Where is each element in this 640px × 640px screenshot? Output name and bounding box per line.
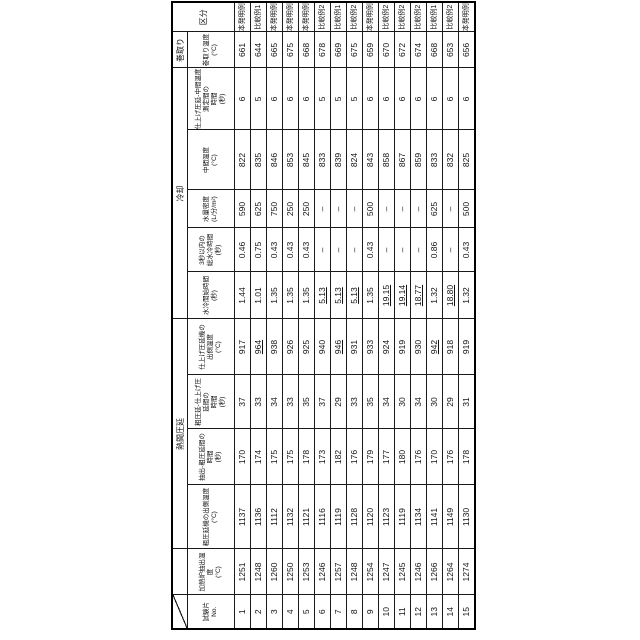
cell-total_water_cooling_time_within_3s: – — [315, 228, 331, 272]
cell-finish_mill_exit_temp: 919 — [459, 319, 476, 375]
cell-classification: 比較例1 — [331, 2, 347, 32]
cell-furnace_extraction_temp: 1251 — [235, 549, 251, 595]
cell-rough_to_finish_rolling_time: 29 — [443, 375, 459, 429]
table-row-specimen-11: 11124511191803091919.14––8676672比較例2 — [395, 2, 411, 629]
table-row-specimen-8: 812481128176339315.13––8245675比較例2 — [347, 2, 363, 629]
cell-finish_to_intermediate_measure_time: 6 — [235, 68, 251, 130]
cell-classification: 本発明例 — [363, 2, 379, 32]
cell-intermediate_temp: 858 — [379, 130, 395, 190]
cell-furnace_extraction_temp: 1260 — [267, 549, 283, 595]
table-row-specimen-6: 612461116173379405.13––8335678比較例2 — [315, 2, 331, 629]
cell-rough_to_finish_rolling_time: 30 — [395, 375, 411, 429]
cell-finish_mill_exit_temp: 924 — [379, 319, 395, 375]
cell-intermediate_temp: 859 — [411, 130, 427, 190]
empty-group-cell — [172, 549, 188, 595]
cell-specimen_no: 9 — [363, 595, 379, 629]
cell-coiling_temp: 661 — [235, 32, 251, 68]
cell-rough_to_finish_rolling_time: 34 — [267, 375, 283, 429]
cell-water_density: 625 — [251, 190, 267, 228]
cell-total_water_cooling_time_within_3s: – — [395, 228, 411, 272]
cell-classification: 本発明例 — [283, 2, 299, 32]
cell-classification: 比較例2 — [315, 2, 331, 32]
cell-classification: 比較例2 — [443, 2, 459, 32]
cell-total_water_cooling_time_within_3s: – — [443, 228, 459, 272]
cell-extraction_to_rough_rolling_time: 176 — [411, 429, 427, 485]
cell-water_density: 590 — [235, 190, 251, 228]
cell-specimen_no: 7 — [331, 595, 347, 629]
page: 熱間圧延 冷却 巻取り 区分 試験片 No. 加熱炉抽出温度 (°C) 粗圧延機… — [0, 0, 640, 640]
column-header-total-water-cooling-time: 3秒以内の 総水冷時間 (秒) — [188, 228, 235, 272]
cell-rough_to_finish_rolling_time: 37 — [315, 375, 331, 429]
cell-specimen_no: 14 — [443, 595, 459, 629]
cell-total_water_cooling_time_within_3s: – — [379, 228, 395, 272]
cell-rough_mill_exit_temp: 1121 — [299, 485, 315, 549]
column-header-water-density: 水量密度 (L/分/m²) — [188, 190, 235, 228]
cell-rough_to_finish_rolling_time: 31 — [459, 375, 476, 429]
cell-finish_mill_exit_temp: 919 — [395, 319, 411, 375]
column-header-finish-to-intermediate-time: 仕上げ圧延-中間温度測定間の 時間 (秒) — [188, 68, 235, 130]
cell-specimen_no: 6 — [315, 595, 331, 629]
table-row-specimen-2: 212481136174339641.010.756258355644比較例1 — [251, 2, 267, 629]
cell-coiling_temp: 675 — [347, 32, 363, 68]
cell-water_density: 625 — [427, 190, 443, 228]
cell-finish_mill_exit_temp: 931 — [347, 319, 363, 375]
cell-finish_to_intermediate_measure_time: 6 — [283, 68, 299, 130]
cell-intermediate_temp: 835 — [251, 130, 267, 190]
cell-furnace_extraction_temp: 1248 — [251, 549, 267, 595]
table-row-specimen-9: 912541120179359331.350.435008436659本発明例 — [363, 2, 379, 629]
cell-specimen_no: 11 — [395, 595, 411, 629]
cell-water_cooling_start_time: 1.35 — [363, 272, 379, 319]
cell-classification: 本発明例 — [459, 2, 476, 32]
cell-extraction_to_rough_rolling_time: 176 — [443, 429, 459, 485]
cell-rough_to_finish_rolling_time: 37 — [235, 375, 251, 429]
cell-intermediate_temp: 846 — [267, 130, 283, 190]
cell-rough_to_finish_rolling_time: 30 — [427, 375, 443, 429]
cell-total_water_cooling_time_within_3s: 0.43 — [459, 228, 476, 272]
cell-furnace_extraction_temp: 1247 — [379, 549, 395, 595]
cell-rough_to_finish_rolling_time: 35 — [299, 375, 315, 429]
cell-water_cooling_start_time: 18.80 — [443, 272, 459, 319]
cell-intermediate_temp: 822 — [235, 130, 251, 190]
cell-classification: 比較例2 — [411, 2, 427, 32]
cell-furnace_extraction_temp: 1257 — [331, 549, 347, 595]
cell-coiling_temp: 672 — [395, 32, 411, 68]
cell-coiling_temp: 653 — [443, 32, 459, 68]
cell-extraction_to_rough_rolling_time: 176 — [347, 429, 363, 485]
cell-total_water_cooling_time_within_3s: 0.43 — [299, 228, 315, 272]
cell-specimen_no: 13 — [427, 595, 443, 629]
cell-intermediate_temp: 845 — [299, 130, 315, 190]
cell-coiling_temp: 675 — [283, 32, 299, 68]
cell-finish_mill_exit_temp: 918 — [443, 319, 459, 375]
cell-rough_mill_exit_temp: 1128 — [347, 485, 363, 549]
cell-classification: 本発明例 — [267, 2, 283, 32]
cell-finish_to_intermediate_measure_time: 6 — [427, 68, 443, 130]
group-header-cooling: 冷却 — [172, 68, 188, 319]
cell-water_density: 250 — [283, 190, 299, 228]
cell-specimen_no: 10 — [379, 595, 395, 629]
column-header-row: 試験片 No. 加熱炉抽出温度 (°C) 粗圧延機の出側温度 (°C) 抽出-粗… — [188, 2, 235, 629]
cell-rough_mill_exit_temp: 1134 — [411, 485, 427, 549]
cell-finish_mill_exit_temp: 964 — [251, 319, 267, 375]
cell-water_cooling_start_time: 18.77 — [411, 272, 427, 319]
table-row-specimen-12: 12124611341763493018.77––8596674比較例2 — [411, 2, 427, 629]
cell-total_water_cooling_time_within_3s: – — [411, 228, 427, 272]
cell-finish_mill_exit_temp: 942 — [427, 319, 443, 375]
cell-total_water_cooling_time_within_3s: 0.86 — [427, 228, 443, 272]
cell-intermediate_temp: 867 — [395, 130, 411, 190]
cell-rough_mill_exit_temp: 1141 — [427, 485, 443, 549]
cell-finish_to_intermediate_measure_time: 6 — [443, 68, 459, 130]
rotated-table-wrapper: 熱間圧延 冷却 巻取り 区分 試験片 No. 加熱炉抽出温度 (°C) 粗圧延機… — [171, 1, 476, 630]
cell-extraction_to_rough_rolling_time: 180 — [395, 429, 411, 485]
table-row-specimen-1: 112511137170379171.440.465908226661本発明例 — [235, 2, 251, 629]
column-header-intermediate-temp: 中間温度 (°C) — [188, 130, 235, 190]
cell-coiling_temp: 668 — [299, 32, 315, 68]
cell-total_water_cooling_time_within_3s: 0.43 — [267, 228, 283, 272]
cell-furnace_extraction_temp: 1274 — [459, 549, 476, 595]
cell-rough_mill_exit_temp: 1112 — [267, 485, 283, 549]
table-row-specimen-3: 312601112175349381.350.437508466665本発明例 — [267, 2, 283, 629]
cell-specimen_no: 8 — [347, 595, 363, 629]
cell-rough_to_finish_rolling_time: 29 — [331, 375, 347, 429]
cell-rough_mill_exit_temp: 1137 — [235, 485, 251, 549]
cell-rough_mill_exit_temp: 1149 — [443, 485, 459, 549]
cell-classification: 比較例2 — [347, 2, 363, 32]
cell-water_cooling_start_time: 5.13 — [315, 272, 331, 319]
cell-rough_to_finish_rolling_time: 33 — [251, 375, 267, 429]
cell-classification: 本発明例 — [235, 2, 251, 32]
cell-intermediate_temp: 824 — [347, 130, 363, 190]
table-row-specimen-7: 712571119182299465.13––8395669比較例1 — [331, 2, 347, 629]
cell-water_density: 500 — [459, 190, 476, 228]
cell-furnace_extraction_temp: 1253 — [299, 549, 315, 595]
cell-extraction_to_rough_rolling_time: 170 — [235, 429, 251, 485]
cell-finish_to_intermediate_measure_time: 6 — [411, 68, 427, 130]
cell-extraction_to_rough_rolling_time: 175 — [267, 429, 283, 485]
table-row-specimen-10: 10124711231773492419.15––8586670比較例2 — [379, 2, 395, 629]
group-header-hot-rolling: 熱間圧延 — [172, 319, 188, 549]
cell-extraction_to_rough_rolling_time: 173 — [315, 429, 331, 485]
cell-classification: 比較例2 — [379, 2, 395, 32]
table-row-specimen-14: 14126411491762991818.80––8326653比較例2 — [443, 2, 459, 629]
cell-rough_mill_exit_temp: 1119 — [395, 485, 411, 549]
cell-finish_mill_exit_temp: 940 — [315, 319, 331, 375]
cell-water_density: – — [331, 190, 347, 228]
cell-classification: 比較例1 — [251, 2, 267, 32]
cell-rough_mill_exit_temp: 1120 — [363, 485, 379, 549]
cell-water_cooling_start_time: 1.35 — [299, 272, 315, 319]
cell-rough_to_finish_rolling_time: 35 — [363, 375, 379, 429]
cell-furnace_extraction_temp: 1245 — [395, 549, 411, 595]
cell-intermediate_temp: 832 — [443, 130, 459, 190]
cell-intermediate_temp: 825 — [459, 130, 476, 190]
cell-total_water_cooling_time_within_3s: 0.43 — [283, 228, 299, 272]
cell-furnace_extraction_temp: 1250 — [283, 549, 299, 595]
cell-water_cooling_start_time: 1.01 — [251, 272, 267, 319]
cell-rough_mill_exit_temp: 1119 — [331, 485, 347, 549]
cell-coiling_temp: 665 — [267, 32, 283, 68]
cell-finish_mill_exit_temp: 917 — [235, 319, 251, 375]
corner-diagonal-cell — [172, 595, 188, 629]
cell-extraction_to_rough_rolling_time: 178 — [459, 429, 476, 485]
cell-water_density: – — [379, 190, 395, 228]
cell-rough_mill_exit_temp: 1116 — [315, 485, 331, 549]
cell-coiling_temp: 668 — [427, 32, 443, 68]
cell-total_water_cooling_time_within_3s: 0.43 — [363, 228, 379, 272]
cell-rough_to_finish_rolling_time: 33 — [347, 375, 363, 429]
column-header-specimen-no: 試験片 No. — [188, 595, 235, 629]
cell-rough_to_finish_rolling_time: 34 — [379, 375, 395, 429]
cell-finish_to_intermediate_measure_time: 6 — [395, 68, 411, 130]
cell-specimen_no: 15 — [459, 595, 476, 629]
cell-water_density: 750 — [267, 190, 283, 228]
cell-total_water_cooling_time_within_3s: 0.75 — [251, 228, 267, 272]
cell-water_density: – — [411, 190, 427, 228]
cell-coiling_temp: 669 — [331, 32, 347, 68]
cell-water_cooling_start_time: 1.35 — [267, 272, 283, 319]
cell-furnace_extraction_temp: 1246 — [315, 549, 331, 595]
cell-specimen_no: 1 — [235, 595, 251, 629]
cell-intermediate_temp: 833 — [427, 130, 443, 190]
table-row-specimen-15: 1512741130178319191.320.435008256656本発明例 — [459, 2, 476, 629]
cell-total_water_cooling_time_within_3s: – — [331, 228, 347, 272]
table-row-specimen-5: 512531121178359251.350.432508456668本発明例 — [299, 2, 315, 629]
cell-total_water_cooling_time_within_3s: – — [347, 228, 363, 272]
cell-classification: 比較例2 — [395, 2, 411, 32]
cell-water_cooling_start_time: 1.44 — [235, 272, 251, 319]
group-header-row: 熱間圧延 冷却 巻取り 区分 — [172, 2, 188, 629]
cell-finish_to_intermediate_measure_time: 5 — [347, 68, 363, 130]
column-header-rough-to-finish-time: 粗圧延-仕上げ圧延間の 時間 (秒) — [188, 375, 235, 429]
cell-intermediate_temp: 839 — [331, 130, 347, 190]
cell-finish_mill_exit_temp: 946 — [331, 319, 347, 375]
cell-specimen_no: 12 — [411, 595, 427, 629]
cell-water_density: – — [443, 190, 459, 228]
cell-rough_mill_exit_temp: 1130 — [459, 485, 476, 549]
cell-water_density: – — [347, 190, 363, 228]
cell-water_cooling_start_time: 19.14 — [395, 272, 411, 319]
cell-finish_to_intermediate_measure_time: 6 — [363, 68, 379, 130]
cell-classification: 比較例1 — [427, 2, 443, 32]
table-row-specimen-13: 1312661141170309421.320.866258336668比較例1 — [427, 2, 443, 629]
cell-finish_mill_exit_temp: 938 — [267, 319, 283, 375]
cell-water_cooling_start_time: 1.35 — [283, 272, 299, 319]
cell-water_cooling_start_time: 1.32 — [427, 272, 443, 319]
cell-finish_mill_exit_temp: 930 — [411, 319, 427, 375]
process-data-table: 熱間圧延 冷却 巻取り 区分 試験片 No. 加熱炉抽出温度 (°C) 粗圧延機… — [171, 1, 476, 630]
column-header-extraction-to-rough-time: 抽出-粗圧延間の 時間 (秒) — [188, 429, 235, 485]
column-header-furnace-extraction-temp: 加熱炉抽出温度 (°C) — [188, 549, 235, 595]
cell-finish_mill_exit_temp: 925 — [299, 319, 315, 375]
column-header-water-cooling-start-time: 水冷開始時間 (秒) — [188, 272, 235, 319]
cell-finish_to_intermediate_measure_time: 5 — [331, 68, 347, 130]
cell-finish_to_intermediate_measure_time: 6 — [299, 68, 315, 130]
cell-coiling_temp: 644 — [251, 32, 267, 68]
cell-extraction_to_rough_rolling_time: 170 — [427, 429, 443, 485]
cell-total_water_cooling_time_within_3s: 0.46 — [235, 228, 251, 272]
cell-intermediate_temp: 833 — [315, 130, 331, 190]
table-body: 112511137170379171.440.465908226661本発明例2… — [235, 2, 476, 629]
cell-water_cooling_start_time: 5.13 — [331, 272, 347, 319]
cell-rough_to_finish_rolling_time: 34 — [411, 375, 427, 429]
cell-extraction_to_rough_rolling_time: 177 — [379, 429, 395, 485]
cell-coiling_temp: 670 — [379, 32, 395, 68]
cell-specimen_no: 4 — [283, 595, 299, 629]
cell-water_cooling_start_time: 19.15 — [379, 272, 395, 319]
cell-finish_to_intermediate_measure_time: 5 — [251, 68, 267, 130]
table-row-specimen-4: 412501132175339261.350.432508536675本発明例 — [283, 2, 299, 629]
cell-rough_mill_exit_temp: 1132 — [283, 485, 299, 549]
cell-extraction_to_rough_rolling_time: 175 — [283, 429, 299, 485]
group-header-coiling: 巻取り — [172, 32, 188, 68]
cell-furnace_extraction_temp: 1248 — [347, 549, 363, 595]
cell-finish_to_intermediate_measure_time: 5 — [315, 68, 331, 130]
cell-water_density: – — [395, 190, 411, 228]
column-header-rough-mill-exit-temp: 粗圧延機の出側温度 (°C) — [188, 485, 235, 549]
cell-intermediate_temp: 843 — [363, 130, 379, 190]
cell-water_density: 500 — [363, 190, 379, 228]
cell-coiling_temp: 674 — [411, 32, 427, 68]
cell-water_cooling_start_time: 5.13 — [347, 272, 363, 319]
cell-finish_to_intermediate_measure_time: 6 — [379, 68, 395, 130]
cell-rough_mill_exit_temp: 1136 — [251, 485, 267, 549]
cell-rough_to_finish_rolling_time: 33 — [283, 375, 299, 429]
cell-coiling_temp: 678 — [315, 32, 331, 68]
cell-rough_mill_exit_temp: 1123 — [379, 485, 395, 549]
cell-coiling_temp: 656 — [459, 32, 476, 68]
cell-classification: 本発明例 — [299, 2, 315, 32]
cell-specimen_no: 5 — [299, 595, 315, 629]
cell-extraction_to_rough_rolling_time: 179 — [363, 429, 379, 485]
cell-finish_mill_exit_temp: 926 — [283, 319, 299, 375]
cell-finish_mill_exit_temp: 933 — [363, 319, 379, 375]
column-header-classification: 区分 — [172, 2, 235, 32]
cell-water_density: 250 — [299, 190, 315, 228]
cell-specimen_no: 3 — [267, 595, 283, 629]
cell-intermediate_temp: 853 — [283, 130, 299, 190]
column-header-finish-mill-exit-temp: 仕上げ圧延機の 出側温度 (°C) — [188, 319, 235, 375]
cell-finish_to_intermediate_measure_time: 6 — [267, 68, 283, 130]
cell-finish_to_intermediate_measure_time: 6 — [459, 68, 476, 130]
cell-furnace_extraction_temp: 1246 — [411, 549, 427, 595]
cell-extraction_to_rough_rolling_time: 182 — [331, 429, 347, 485]
cell-extraction_to_rough_rolling_time: 178 — [299, 429, 315, 485]
cell-coiling_temp: 659 — [363, 32, 379, 68]
column-header-coiling-temp: 巻取り温度 (°C) — [188, 32, 235, 68]
cell-furnace_extraction_temp: 1254 — [363, 549, 379, 595]
cell-furnace_extraction_temp: 1264 — [443, 549, 459, 595]
cell-furnace_extraction_temp: 1266 — [427, 549, 443, 595]
cell-water_density: – — [315, 190, 331, 228]
cell-specimen_no: 2 — [251, 595, 267, 629]
cell-water_cooling_start_time: 1.32 — [459, 272, 476, 319]
cell-extraction_to_rough_rolling_time: 174 — [251, 429, 267, 485]
